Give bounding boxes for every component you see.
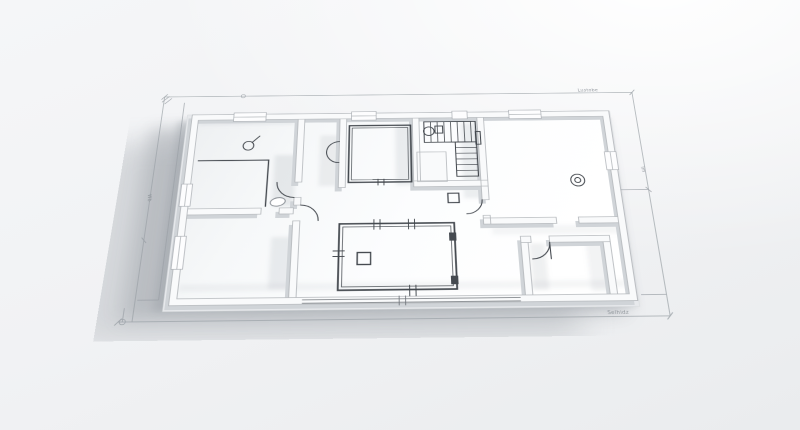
- floor-plan-3d-model: Lustobe Selhidz Wb lm: [93, 77, 713, 342]
- dimension-label-right: lm: [639, 166, 647, 173]
- floor-plan-svg: Lustobe Selhidz Wb lm: [93, 77, 713, 342]
- dimension-label-top: Lustobe: [577, 88, 598, 93]
- render-canvas: Lustobe Selhidz Wb lm: [0, 0, 800, 430]
- dimension-label-bottom: Selhidz: [607, 310, 630, 317]
- dimension-label-left: Wb: [146, 194, 153, 202]
- skylight-window: [452, 111, 468, 119]
